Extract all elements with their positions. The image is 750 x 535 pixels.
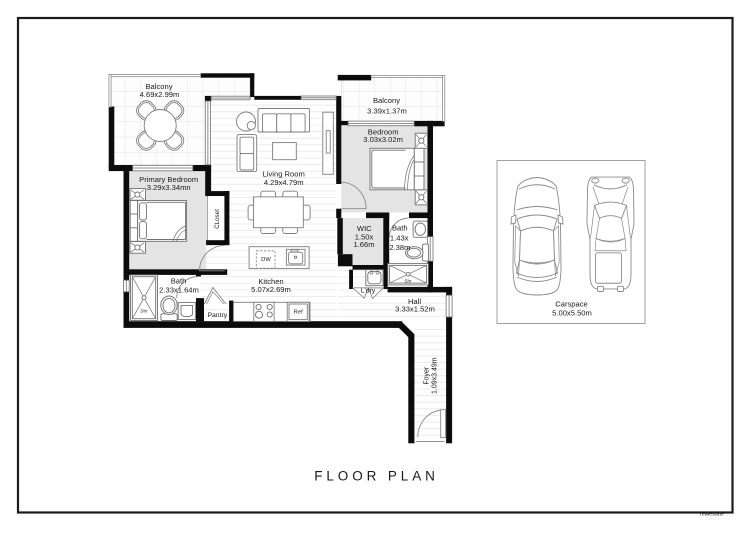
svg-text:1.43x: 1.43x xyxy=(390,234,409,243)
svg-text:Shr: Shr xyxy=(140,309,148,314)
svg-text:Bath: Bath xyxy=(392,224,408,233)
svg-text:3.03x3.02m: 3.03x3.02m xyxy=(363,135,403,144)
svg-text:Carspace: Carspace xyxy=(555,300,588,309)
svg-text:3.39x1.37m: 3.39x1.37m xyxy=(367,107,407,116)
svg-text:1.66m: 1.66m xyxy=(353,240,374,249)
svg-text:Balcony: Balcony xyxy=(373,96,400,105)
svg-text:DW: DW xyxy=(261,257,271,263)
svg-text:CLoset: CLoset xyxy=(214,209,221,229)
svg-text:2.38m: 2.38m xyxy=(389,243,410,252)
svg-text:2.33x1.64m: 2.33x1.64m xyxy=(159,286,199,295)
svg-text:4.69x2.99m: 4.69x2.99m xyxy=(140,90,180,99)
svg-text:3.29x3.34mn: 3.29x3.34mn xyxy=(147,183,191,192)
svg-text:1.09x3.49m: 1.09x3.49m xyxy=(432,357,439,394)
svg-text:Bath: Bath xyxy=(171,277,187,286)
svg-text:FLOOR PLAN: FLOOR PLAN xyxy=(314,469,439,484)
svg-text:L'dry: L'dry xyxy=(361,288,376,295)
svg-text:Foyer: Foyer xyxy=(424,366,431,385)
svg-text:3.33x1.52m: 3.33x1.52m xyxy=(395,304,435,313)
svg-text:Pantry: Pantry xyxy=(207,312,227,319)
svg-text:5.00x5.50m: 5.00x5.50m xyxy=(552,309,592,318)
svg-text:4.29x4.79m: 4.29x4.79m xyxy=(264,178,304,187)
svg-text:Shr: Shr xyxy=(404,278,412,283)
svg-text:Ref: Ref xyxy=(294,310,303,316)
svg-text:5.07x2.69m: 5.07x2.69m xyxy=(251,285,291,294)
svg-text:realestate: realestate xyxy=(700,512,724,518)
